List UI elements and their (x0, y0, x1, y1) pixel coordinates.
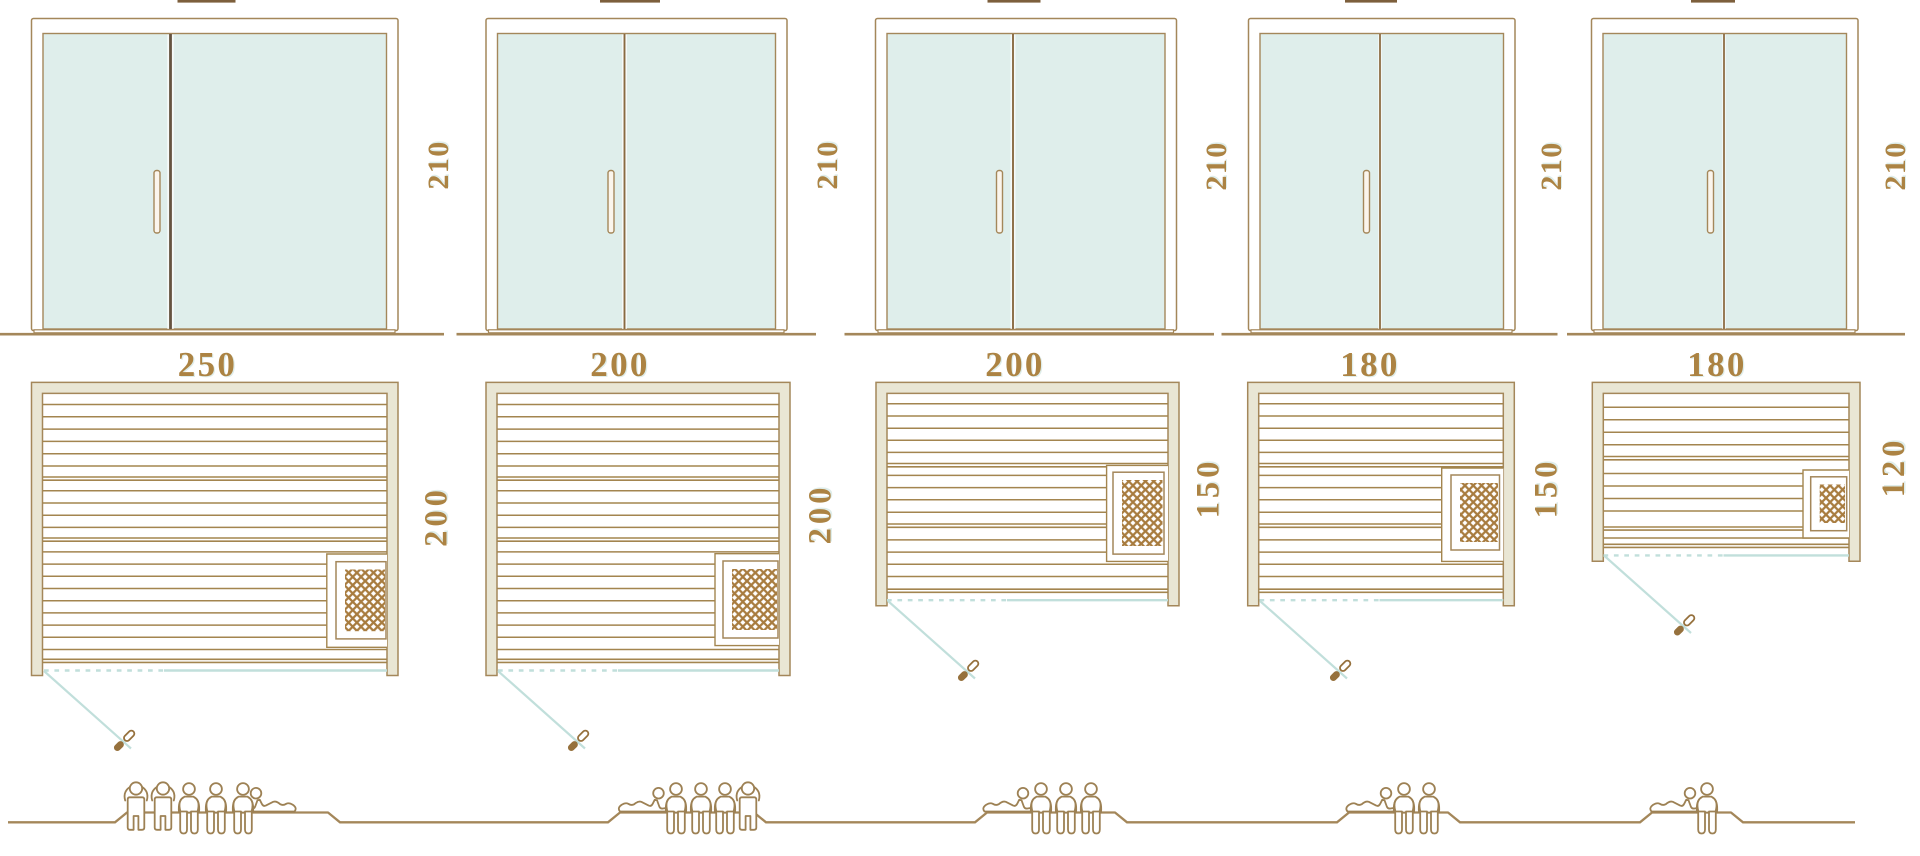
svg-text:210: 210 (1879, 141, 1912, 190)
svg-text:200: 200 (419, 486, 455, 547)
svg-text:150: 150 (1190, 458, 1226, 519)
svg-text:210: 210 (1535, 141, 1568, 190)
svg-text:180: 180 (1687, 345, 1746, 384)
svg-text:210: 210 (811, 140, 844, 189)
svg-text:200: 200 (985, 345, 1044, 384)
svg-text:120: 120 (1876, 437, 1912, 498)
svg-text:210: 210 (422, 140, 455, 189)
svg-text:200: 200 (803, 484, 839, 545)
svg-text:150: 150 (1529, 458, 1565, 519)
svg-text:210: 210 (1200, 141, 1233, 190)
svg-text:180: 180 (1340, 345, 1399, 384)
svg-text:250: 250 (178, 345, 237, 384)
svg-text:200: 200 (590, 345, 649, 384)
